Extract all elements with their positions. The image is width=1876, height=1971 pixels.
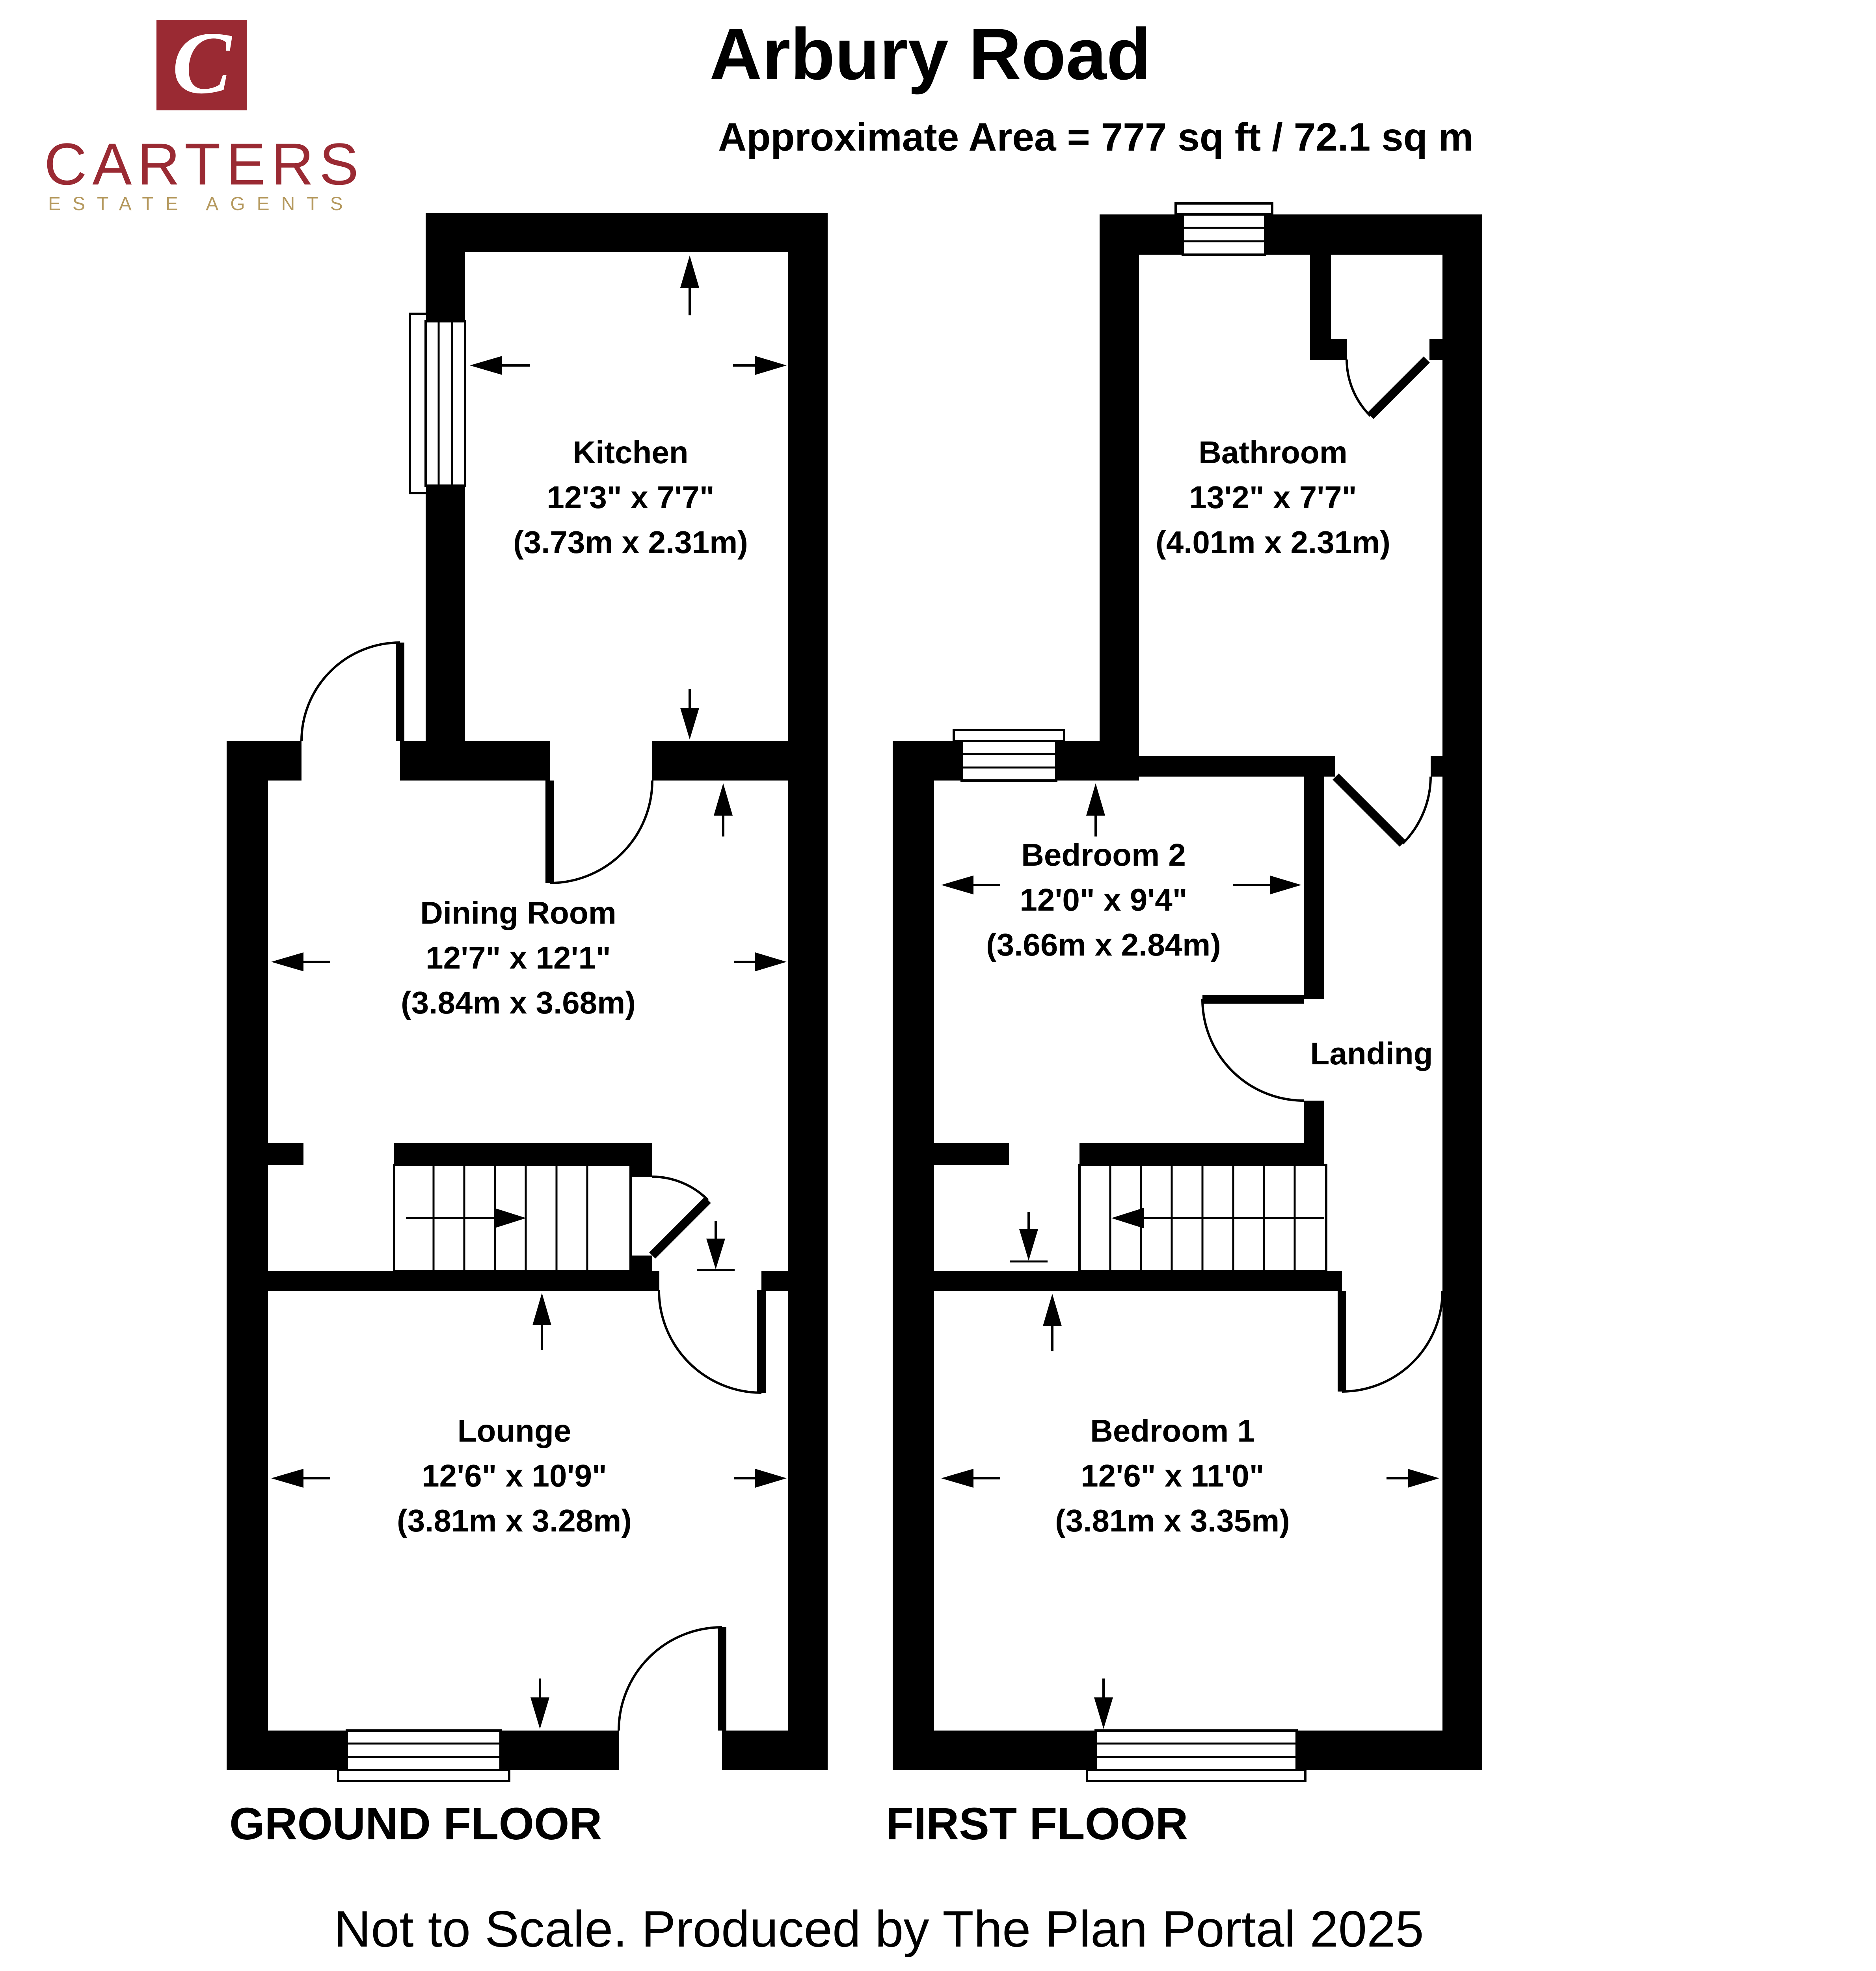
bedroom-2-label: Bedroom 2 12'0" x 9'4" (3.66m x 2.84m) xyxy=(986,837,1221,962)
bathroom-door xyxy=(1336,777,1431,844)
bedroom-1-metric: (3.81m x 3.35m) xyxy=(1055,1503,1290,1538)
kitchen-window xyxy=(410,314,465,493)
stairs-door xyxy=(652,1177,708,1256)
dining-metric: (3.84m x 3.68m) xyxy=(401,985,636,1020)
first-floor-stairs xyxy=(1079,1165,1326,1271)
lounge-door xyxy=(659,1290,761,1393)
lounge-name: Lounge xyxy=(458,1413,571,1448)
dining-imperial: 12'7" x 12'1" xyxy=(426,940,611,975)
bedroom-1-imperial: 12'6" x 11'0" xyxy=(1081,1458,1264,1493)
ground-floor-stairs xyxy=(394,1165,631,1271)
footer-disclaimer: Not to Scale. Produced by The Plan Porta… xyxy=(0,1903,1758,1954)
bedroom-2-door xyxy=(1202,999,1304,1101)
floor-plans-canvas: Kitchen 12'3" x 7'7" (3.73m x 2.31m) Din… xyxy=(0,0,1876,1971)
bedroom-1-door xyxy=(1342,1291,1442,1392)
dining-name: Dining Room xyxy=(420,895,616,930)
first-floor-caption: FIRST FLOOR xyxy=(886,1801,1188,1847)
dining-room-label: Dining Room 12'7" x 12'1" (3.84m x 3.68m… xyxy=(401,895,636,1020)
lounge-label: Lounge 12'6" x 10'9" (3.81m x 3.28m) xyxy=(397,1413,632,1538)
kitchen-metric: (3.73m x 2.31m) xyxy=(513,525,748,560)
bathroom-window xyxy=(1176,203,1272,255)
first-floor-plan: Bathroom 13'2" x 7'7" (4.01m x 2.31m) Be… xyxy=(893,203,1482,1781)
bathroom-imperial: 13'2" x 7'7" xyxy=(1189,480,1357,515)
bedroom-2-metric: (3.66m x 2.84m) xyxy=(986,927,1221,962)
bedroom-1-label: Bedroom 1 12'6" x 11'0" (3.81m x 3.35m) xyxy=(1055,1413,1290,1538)
bedroom-1-window xyxy=(1087,1731,1305,1781)
kitchen-name: Kitchen xyxy=(573,435,688,470)
kitchen-door xyxy=(550,781,652,883)
bedroom-2-imperial: 12'0" x 9'4" xyxy=(1020,882,1187,917)
ground-floor-plan: Kitchen 12'3" x 7'7" (3.73m x 2.31m) Din… xyxy=(227,213,828,1781)
kitchen-imperial: 12'3" x 7'7" xyxy=(547,480,714,515)
cupboard-door xyxy=(1347,360,1427,416)
side-entrance-door xyxy=(301,643,400,741)
lounge-metric: (3.81m x 3.28m) xyxy=(397,1503,632,1538)
landing-label: Landing xyxy=(1310,1036,1433,1071)
bedroom-2-window xyxy=(954,730,1064,781)
ground-floor-caption: GROUND FLOOR xyxy=(229,1801,602,1847)
lounge-window xyxy=(338,1731,509,1781)
lounge-imperial: 12'6" x 10'9" xyxy=(422,1458,607,1493)
floorplan-page: C CARTERS ESTATE AGENTS Arbury Road Appr… xyxy=(0,0,1876,1971)
bathroom-name: Bathroom xyxy=(1199,435,1347,470)
front-door xyxy=(619,1627,722,1731)
kitchen-label: Kitchen 12'3" x 7'7" (3.73m x 2.31m) xyxy=(513,435,748,560)
bedroom-1-name: Bedroom 1 xyxy=(1090,1413,1255,1448)
bedroom-2-name: Bedroom 2 xyxy=(1021,837,1186,872)
bathroom-label: Bathroom 13'2" x 7'7" (4.01m x 2.31m) xyxy=(1156,435,1390,560)
bathroom-metric: (4.01m x 2.31m) xyxy=(1156,525,1390,560)
